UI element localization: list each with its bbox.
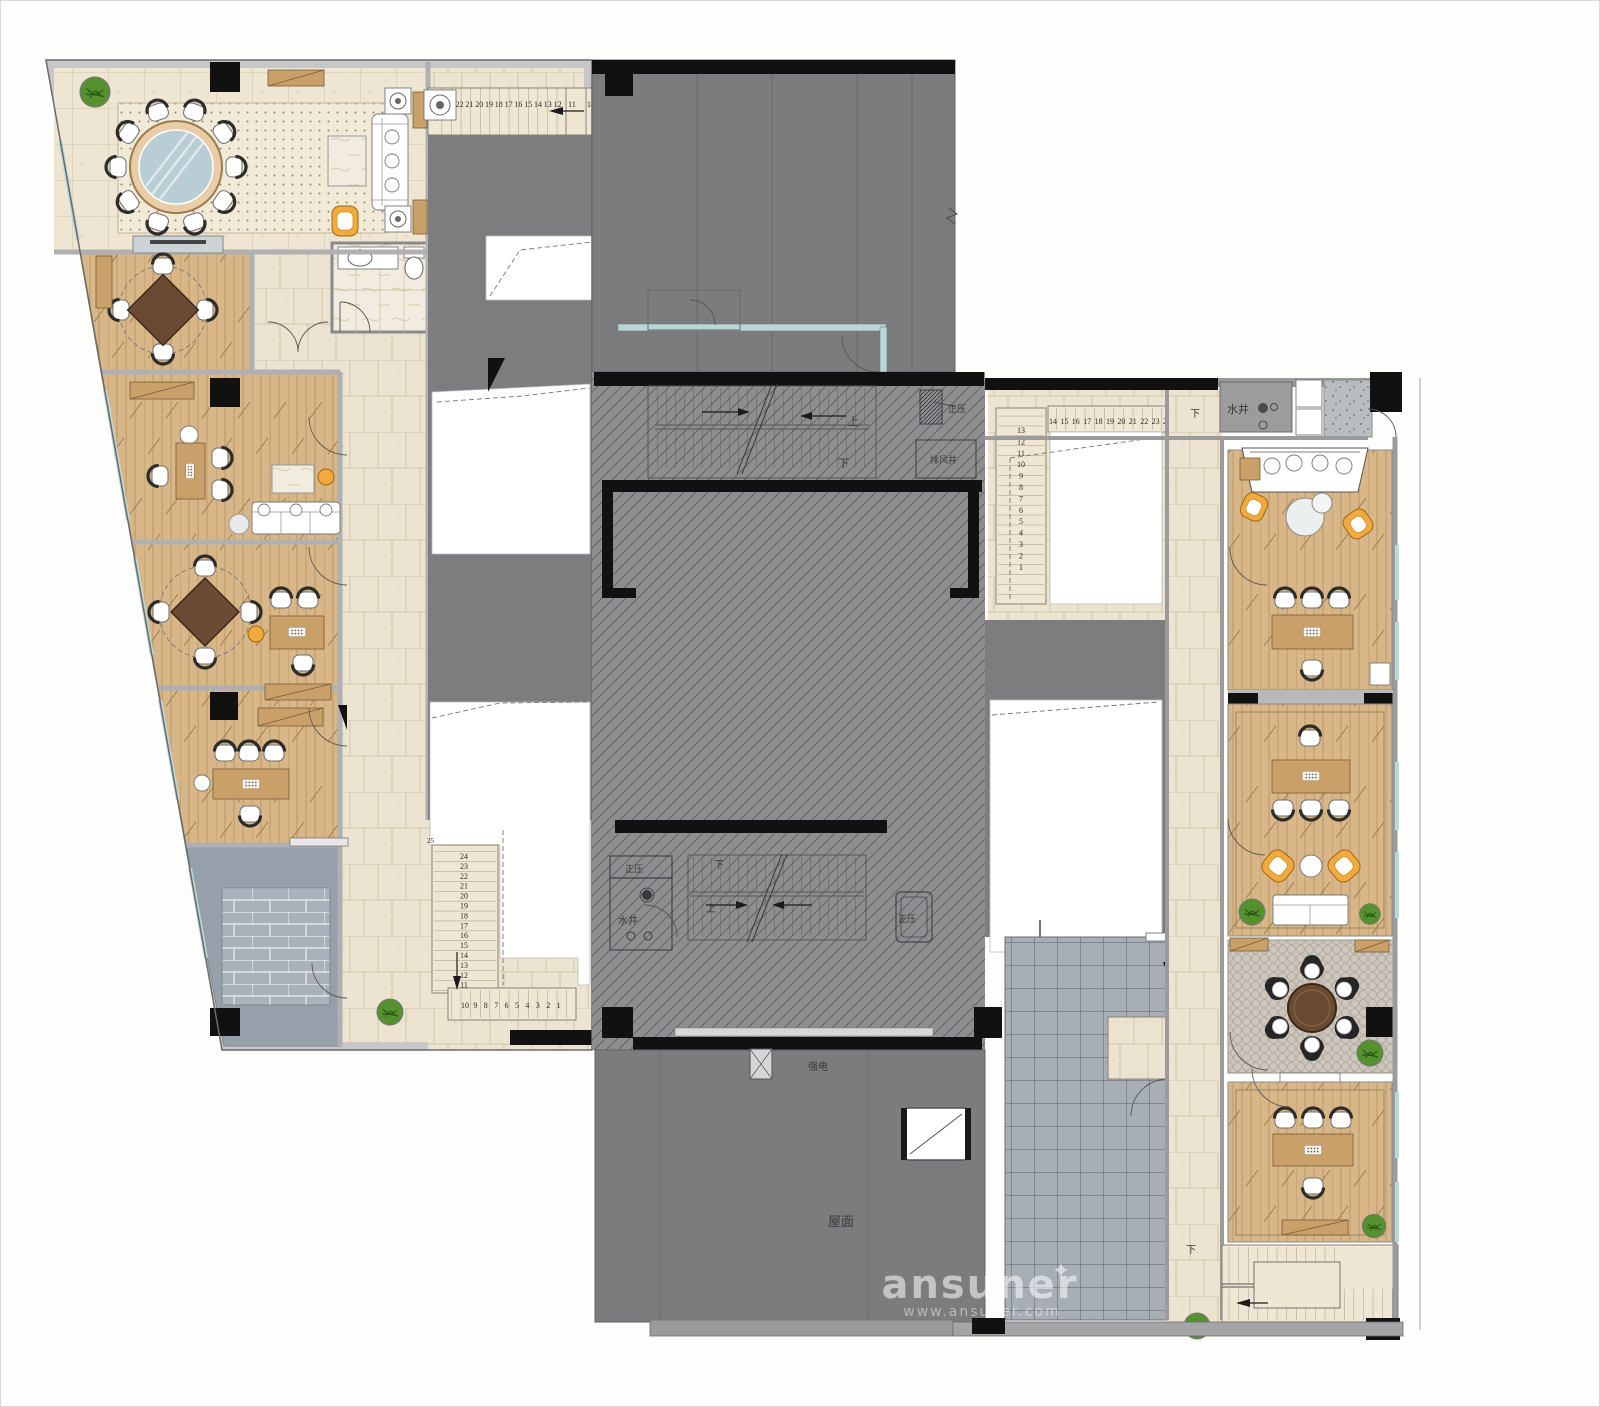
stair-step-number: 15: [524, 100, 532, 109]
plant: [1362, 1214, 1385, 1237]
column: [605, 74, 633, 96]
stair-step-number: 22: [456, 100, 464, 109]
roof-opening: [486, 236, 594, 300]
stair-step-number: 13: [544, 100, 552, 109]
stair-step-number: 24: [460, 852, 468, 861]
stair-step-number: 17: [505, 100, 513, 109]
down-label: 下: [714, 860, 724, 871]
stair-step-number: 20: [1117, 417, 1125, 426]
stair-step-number: 7: [494, 1001, 498, 1010]
stair-step-number: 4: [525, 1001, 529, 1010]
stair-step-number: 18: [495, 100, 503, 109]
stair-step-number: 16: [460, 931, 468, 940]
stair-step-number: 21: [1129, 417, 1137, 426]
column: [210, 1008, 240, 1036]
plant: [1360, 904, 1381, 925]
top-roof: [592, 60, 957, 372]
walkway: [1167, 390, 1222, 1322]
terrace-brick-paving: [222, 888, 330, 1005]
down-label: 下: [1190, 409, 1200, 420]
stair-step-number: 14: [460, 951, 468, 960]
stair-step-number: 8: [1019, 483, 1023, 492]
floor-plan-canvas: 24232221201918171615141312 1110 下 242322…: [0, 0, 1600, 1407]
plant: [1239, 899, 1265, 925]
roof-opening: [432, 384, 590, 554]
stair-step-number: 4: [1019, 529, 1023, 538]
stair-step-number: 10: [1017, 460, 1025, 469]
stair-step-number: 19: [1106, 417, 1114, 426]
stair-step-number: 18: [460, 911, 468, 920]
stair-mark-25: 25: [427, 837, 435, 845]
watermark-url: www.ansuner.com: [903, 1304, 1060, 1320]
stair-step-number: 19: [485, 100, 493, 109]
stair-step-number: 23: [1152, 417, 1160, 426]
stair-step-number: 20: [475, 100, 483, 109]
stair-step-number: 16: [514, 100, 522, 109]
stair-step-number: 5: [515, 1001, 519, 1010]
column: [1370, 372, 1402, 412]
down-label: 下: [838, 457, 849, 470]
roof-label: 屋面: [828, 1215, 854, 1230]
stair-step-number: 21: [465, 100, 473, 109]
stair-step-number: 1: [557, 1001, 561, 1010]
central-core: 上 下 正压 排风井 下 上 正压 水井 正压: [592, 372, 1002, 1050]
stair-step-number: 15: [460, 941, 468, 950]
positive-pressure-label: 正压: [948, 404, 966, 415]
stair-step-number: 18: [1095, 417, 1103, 426]
stair-step-number: 3: [1019, 540, 1023, 549]
stair-step-number: 2: [1019, 551, 1023, 560]
core-stair-upper: 上 下: [648, 384, 876, 478]
stair-step-number: 19: [460, 902, 468, 911]
stair-step-number: 11: [568, 100, 576, 109]
watermark-star: ✦: [1052, 1259, 1072, 1284]
roof-opening: [990, 700, 1162, 952]
side-table: [272, 465, 314, 493]
column: [1366, 1007, 1396, 1037]
plant: [80, 77, 110, 107]
stair-step-number: 16: [1072, 417, 1080, 426]
stair-step-number: 9: [1019, 472, 1023, 481]
stair-step-number: 15: [1060, 417, 1068, 426]
stair-step-number: 21: [460, 882, 468, 891]
core-stair-lower: 下 上: [688, 854, 866, 942]
up-label: 上: [706, 903, 716, 915]
watermark: ansuner ✦ www.ansuner.com: [881, 1259, 1078, 1320]
column: [210, 692, 238, 720]
watermark-brand: ansuner: [881, 1262, 1078, 1308]
stair-step-number: 14: [534, 100, 542, 109]
stair-step-number: 2: [546, 1001, 550, 1010]
stair-step-number: 3: [536, 1001, 540, 1010]
right-room-d: [1228, 1069, 1392, 1242]
floor-plan-screenshot: 24232221201918171615141312 1110 下 242322…: [0, 0, 1600, 1407]
sofa: [1273, 895, 1348, 925]
plant: [1357, 1040, 1383, 1066]
stair-step-number: 23: [460, 862, 468, 871]
down-label: 下: [1186, 1245, 1196, 1256]
stair-step-number: 10: [461, 1001, 469, 1010]
positive-pressure-label: 正压: [625, 864, 643, 875]
stair-step-number: 9: [473, 1001, 477, 1010]
stair-step-number: 13: [1017, 426, 1025, 435]
yellow-stool: [318, 469, 334, 485]
stair-step-number: 14: [1049, 417, 1057, 426]
right-room-a: [1228, 448, 1392, 690]
exhaust-shaft-label: 排风井: [930, 454, 957, 466]
stair-step-number: 8: [484, 1001, 488, 1010]
tv-console: [133, 236, 223, 253]
stair-step-number: 7: [1019, 494, 1023, 503]
column: [210, 62, 240, 92]
roof-opening: [1050, 432, 1162, 604]
stair-step-number: 12: [554, 100, 562, 109]
bathroom: [332, 243, 428, 332]
positive-pressure-label: 正压: [898, 914, 916, 925]
right-dining-area: [1228, 938, 1396, 1082]
stair-step-number: 6: [1019, 506, 1023, 515]
stair-step-number: 12: [460, 971, 468, 980]
stair-step-number: 22: [1140, 417, 1148, 426]
column: [210, 378, 240, 407]
stair-step-number: 17: [460, 921, 468, 930]
right-mid-zone: 13121110987654321 1415161718192021222324…: [985, 378, 1185, 1320]
stair-step-number: 1: [1019, 563, 1023, 572]
stair-step-number: 20: [460, 892, 468, 901]
stair-step-number: 13: [460, 961, 468, 970]
plant: [377, 999, 403, 1025]
stair-step-number: 6: [505, 1001, 509, 1010]
roof-hatch: [901, 1108, 971, 1160]
water-well-label: 水井: [1227, 402, 1249, 416]
toilet: [405, 257, 423, 279]
tv: [150, 240, 206, 244]
right-room-b: [1228, 704, 1392, 936]
water-well-label: 水井: [618, 914, 638, 927]
up-label: 上: [848, 415, 859, 428]
stair-top: 24232221201918171615141312 1110 下: [424, 88, 595, 135]
strong-electric-label: 强电: [808, 1060, 828, 1073]
stair-step-number: 5: [1019, 517, 1023, 526]
round-dining-table: [1288, 984, 1336, 1032]
stair-step-number: 22: [460, 872, 468, 881]
concrete-pad: [1324, 380, 1372, 437]
stair-step-number: 11: [460, 981, 468, 990]
stair-step-number: 17: [1083, 417, 1091, 426]
coffee-table: [328, 136, 366, 186]
